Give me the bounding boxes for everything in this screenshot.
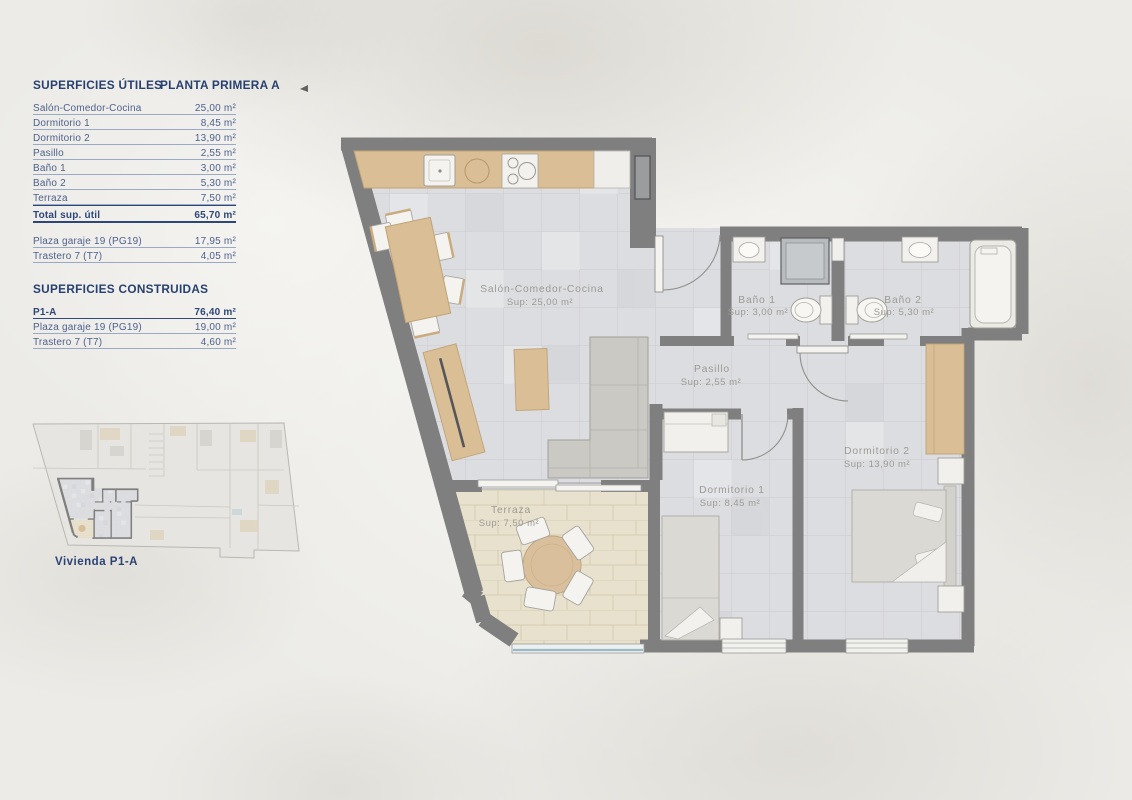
bathtub-inner xyxy=(975,246,1011,323)
nightstand xyxy=(938,458,964,484)
bath1-pocket-door xyxy=(748,334,798,339)
dorm2-window xyxy=(846,639,908,653)
sliding-panel xyxy=(478,480,558,487)
floorplan-page: SUPERFICIES ÚTILES PLANTA PRIMERA A Saló… xyxy=(0,0,1132,800)
duct-shaft xyxy=(635,156,650,199)
room-label-salon: Salón-Comedor-Cocina xyxy=(480,284,604,295)
mini-building-plan xyxy=(33,423,299,558)
entrance-door-leaf xyxy=(655,236,663,292)
kitchen-appliance xyxy=(594,151,630,188)
toilet-tank xyxy=(820,296,832,324)
room-label-dorm1: Dormitorio 1 xyxy=(699,485,765,496)
dorm2-door-leaf xyxy=(797,346,848,353)
terrace-chair xyxy=(501,550,525,582)
bath-niche xyxy=(832,238,844,261)
room-sup-dorm1: Sup: 8,45 m² xyxy=(700,498,760,509)
sliding-panel xyxy=(556,485,641,491)
room-sup-pasillo: Sup: 2,55 m² xyxy=(681,377,741,388)
sink-basin xyxy=(909,243,931,258)
dorm1-window xyxy=(722,639,786,653)
toilet-bowl xyxy=(791,298,821,322)
room-sup-salon: Sup: 25,00 m² xyxy=(507,297,573,308)
room-label-bath1: Baño 1 xyxy=(738,295,775,306)
room-sup-bath1: Sup: 3,00 m² xyxy=(728,307,788,318)
room-label-pasillo: Pasillo xyxy=(694,364,730,375)
nightstand xyxy=(938,586,964,612)
room-label-terraza: Terraza xyxy=(491,505,531,516)
closet-box xyxy=(712,414,726,426)
coffee-table xyxy=(514,348,549,410)
kitchen xyxy=(354,151,630,188)
terrace-glass-rail xyxy=(512,644,644,653)
sink-faucet xyxy=(438,169,441,172)
room-label-dorm2: Dormitorio 2 xyxy=(844,446,910,457)
room-sup-dorm2: Sup: 13,90 m² xyxy=(844,459,910,470)
stray-mark xyxy=(300,85,308,92)
bath2-pocket-door xyxy=(850,334,907,339)
nightstand xyxy=(720,618,742,640)
sink-basin xyxy=(739,243,759,258)
dorm2-wardrobe xyxy=(926,344,964,454)
hob xyxy=(502,154,538,188)
toilet-tank xyxy=(846,296,858,324)
room-label-bath2: Baño 2 xyxy=(884,295,921,306)
shower-tray xyxy=(786,243,824,279)
room-sup-bath2: Sup: 5,30 m² xyxy=(874,307,934,318)
plan-drawing: Salón-Comedor-Cocina Sup: 25,00 m² Baño … xyxy=(0,0,1132,800)
room-sup-terraza: Sup: 7,50 m² xyxy=(479,518,539,529)
